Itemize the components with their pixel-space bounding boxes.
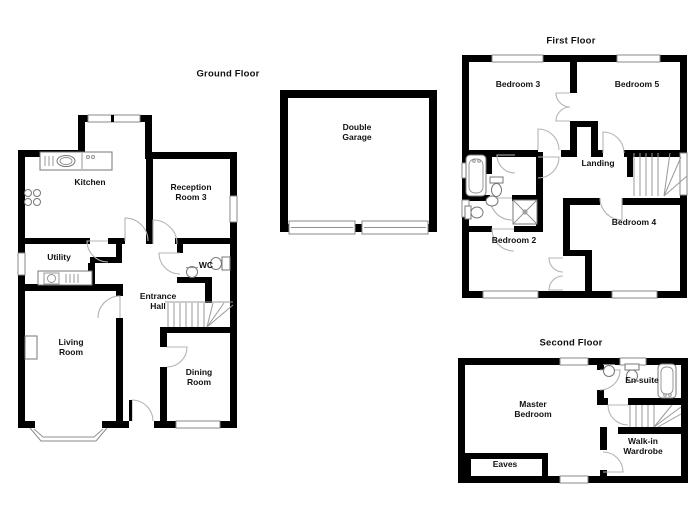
window — [680, 153, 687, 195]
window — [560, 358, 588, 365]
wall — [542, 453, 548, 483]
window — [492, 55, 543, 62]
window-divider — [111, 115, 114, 122]
window — [612, 291, 657, 298]
wall — [624, 150, 687, 157]
wall — [146, 159, 153, 244]
first-fixtures — [465, 155, 537, 224]
stairs — [165, 302, 233, 327]
second-doors — [600, 370, 628, 472]
bath — [466, 155, 486, 196]
closet-door-arc — [549, 258, 563, 272]
wall — [18, 238, 90, 244]
wall — [600, 427, 607, 450]
door-arc — [159, 253, 180, 274]
door-arc — [608, 405, 628, 425]
wall — [230, 152, 237, 428]
front-door-arc — [132, 400, 153, 421]
door-arc — [600, 198, 622, 220]
wall — [465, 453, 548, 459]
door-arc — [497, 155, 515, 173]
door-arc — [603, 452, 623, 472]
window — [617, 55, 660, 62]
wall — [618, 427, 688, 434]
basin — [603, 365, 615, 377]
door-arc — [125, 218, 148, 241]
wall — [681, 358, 688, 483]
wall — [160, 367, 167, 428]
first-doors — [490, 93, 624, 290]
closet-door-arc — [549, 276, 563, 290]
second-stairs — [630, 405, 681, 427]
door-arc — [603, 132, 624, 153]
wall — [280, 90, 288, 232]
wall — [145, 152, 237, 159]
door-arc — [153, 220, 177, 244]
chimney-breast — [25, 336, 37, 359]
wall — [205, 277, 212, 303]
wall — [561, 150, 570, 157]
wall — [591, 150, 603, 157]
wall — [116, 284, 123, 296]
stairs — [634, 153, 687, 196]
wall — [627, 150, 633, 177]
wall — [486, 152, 492, 174]
door-arc — [556, 93, 570, 107]
window — [483, 291, 538, 298]
wall — [597, 358, 604, 370]
floorplan-canvas: Ground Floor Kitchen Reception Room 3 Ut… — [0, 0, 700, 508]
floorplan-drawing — [0, 0, 700, 508]
shower — [513, 200, 537, 224]
hob — [25, 190, 41, 206]
wall — [628, 398, 688, 405]
wall — [280, 90, 437, 98]
wall — [597, 398, 608, 405]
wall — [622, 198, 687, 205]
wall — [585, 250, 592, 298]
first-floor-plan — [462, 55, 687, 298]
ground-doors — [87, 218, 187, 421]
door-arc — [492, 229, 514, 251]
ground-stairs — [165, 302, 233, 327]
first-stairs — [634, 153, 687, 196]
wall — [175, 238, 237, 244]
basin — [186, 267, 198, 278]
wall — [177, 238, 183, 253]
window — [230, 196, 237, 222]
basin — [486, 196, 498, 206]
wall — [429, 90, 437, 232]
garage-walls — [280, 90, 437, 232]
bay-window — [30, 428, 107, 441]
wall — [160, 333, 167, 347]
door-arc — [538, 129, 559, 150]
window — [560, 476, 588, 483]
door-arc — [98, 296, 120, 318]
front-door-leaf — [129, 400, 132, 421]
toilet — [465, 206, 483, 219]
kitchen-sink-unit — [40, 152, 112, 170]
wall — [116, 318, 123, 428]
utility-counter — [38, 271, 92, 285]
window — [176, 421, 220, 428]
wall — [462, 226, 492, 232]
door-arc — [556, 107, 570, 121]
wall — [458, 358, 465, 483]
wall — [570, 55, 577, 93]
wall — [514, 226, 543, 232]
toilet — [211, 257, 231, 270]
garage-plan — [280, 90, 437, 234]
window — [18, 253, 25, 275]
wall — [160, 327, 237, 333]
ground-floor-plan — [18, 115, 237, 441]
second-fixtures — [603, 364, 676, 398]
second-floor-plan — [458, 358, 688, 483]
stairs — [630, 405, 681, 427]
wall — [563, 198, 570, 256]
door-arc — [167, 347, 187, 367]
wall — [465, 453, 471, 483]
toilet — [490, 177, 503, 197]
bath — [658, 364, 676, 398]
bay-opening — [35, 421, 102, 428]
toilet — [625, 364, 639, 382]
door-opening — [129, 421, 154, 428]
